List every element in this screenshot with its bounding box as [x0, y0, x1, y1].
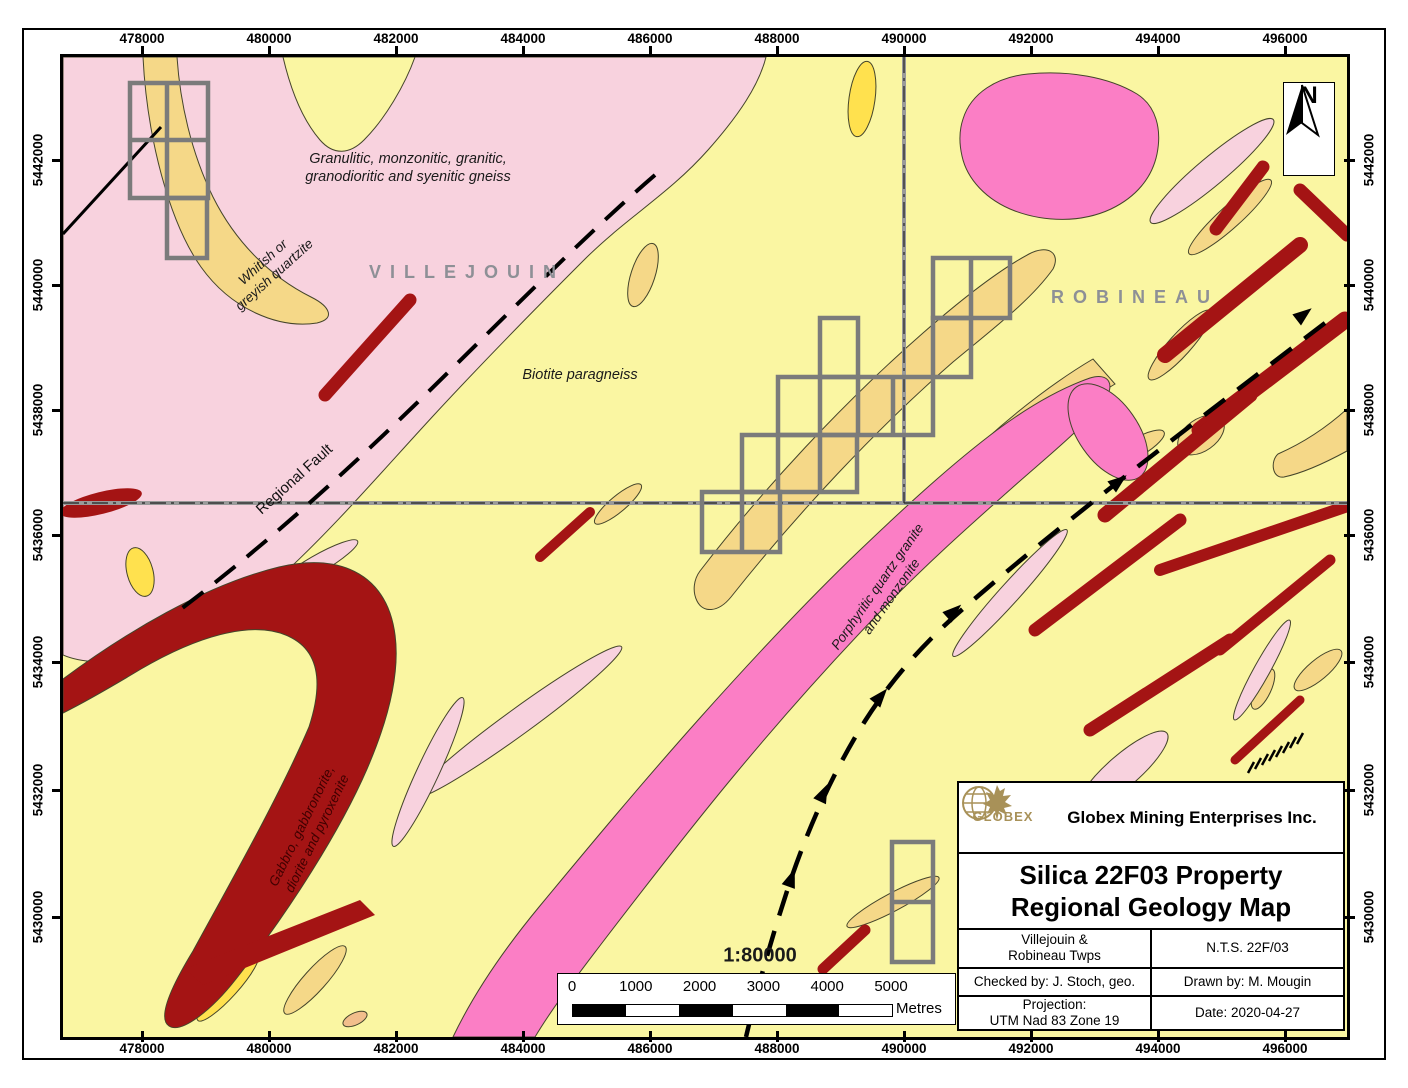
scale-ratio-label: 1:80000	[723, 944, 796, 969]
northing-label-right: 5440000	[1362, 259, 1377, 312]
tick-top	[1284, 46, 1287, 57]
tick-left	[52, 284, 63, 287]
map-title-line2: Regional Geology Map	[1011, 891, 1291, 924]
scale-bar-segment	[839, 1005, 892, 1016]
tick-bottom	[395, 1031, 398, 1042]
tick-right	[1344, 284, 1355, 287]
northing-label-left: 5436000	[31, 509, 46, 562]
map-area: Granulitic, monzonitic, granitic,granodi…	[60, 54, 1350, 1040]
tick-right	[1344, 916, 1355, 919]
tick-right	[1344, 159, 1355, 162]
date-cell: Date: 2020-04-27	[1150, 997, 1343, 1029]
easting-label-bottom: 478000	[119, 1041, 164, 1056]
scale-bar-segment	[786, 1005, 839, 1016]
label-granulitic-gneiss: Granulitic, monzonitic, granitic,granodi…	[305, 150, 511, 186]
scale-bar-number: 5000	[874, 978, 907, 995]
scale-bar-number: 0	[568, 978, 576, 995]
tick-bottom	[776, 1031, 779, 1042]
tick-bottom	[522, 1031, 525, 1042]
tick-right	[1344, 534, 1355, 537]
easting-label-bottom: 496000	[1262, 1041, 1307, 1056]
title-block-row-credits: Checked by: J. Stoch, geo. Drawn by: M. …	[959, 967, 1343, 995]
title-block: GLOBEX Globex Mining Enterprises Inc. Si…	[957, 781, 1345, 1031]
title-block-row-projection: Projection:UTM Nad 83 Zone 19 Date: 2020…	[959, 995, 1343, 1029]
map-title-line1: Silica 22F03 Property	[1019, 859, 1282, 892]
townships-cell: Villejouin &Robineau Twps	[959, 930, 1150, 968]
globex-logo: GLOBEX	[967, 812, 1039, 824]
easting-label-bottom: 490000	[881, 1041, 926, 1056]
tick-left	[52, 916, 63, 919]
tick-bottom	[141, 1031, 144, 1042]
scale-bar-segment	[679, 1005, 732, 1016]
tick-top	[903, 46, 906, 57]
scale-bar-segment	[733, 1005, 786, 1016]
magenta-blob	[960, 73, 1159, 219]
tick-top	[268, 46, 271, 57]
tick-top	[776, 46, 779, 57]
easting-label-top: 488000	[754, 31, 799, 46]
northing-label-right: 5438000	[1362, 384, 1377, 437]
northing-label-left: 5432000	[31, 764, 46, 817]
north-arrow: N	[1283, 82, 1335, 176]
company-name: Globex Mining Enterprises Inc.	[1049, 808, 1335, 828]
northing-label-left: 5430000	[31, 891, 46, 944]
north-arrow-icon	[1284, 83, 1320, 139]
tick-right	[1344, 661, 1355, 664]
easting-label-top: 480000	[246, 31, 291, 46]
tick-top	[1157, 46, 1160, 57]
scale-bar-unit: Metres	[896, 1000, 942, 1017]
easting-label-bottom: 492000	[1008, 1041, 1053, 1056]
easting-label-top: 482000	[373, 31, 418, 46]
nts-cell: N.T.S. 22F/03	[1150, 930, 1343, 968]
northing-label-right: 5436000	[1362, 509, 1377, 562]
northing-label-left: 5438000	[31, 384, 46, 437]
easting-label-top: 486000	[627, 31, 672, 46]
easting-label-bottom: 488000	[754, 1041, 799, 1056]
scale-bar-number: 4000	[811, 978, 844, 995]
tick-left	[52, 409, 63, 412]
northing-label-left: 5442000	[31, 134, 46, 187]
tick-top	[1030, 46, 1033, 57]
tick-top	[141, 46, 144, 57]
northing-label-left: 5440000	[31, 259, 46, 312]
northing-label-right: 5430000	[1362, 891, 1377, 944]
easting-label-top: 496000	[1262, 31, 1307, 46]
tick-left	[52, 789, 63, 792]
tick-left	[52, 534, 63, 537]
tick-bottom	[649, 1031, 652, 1042]
tick-bottom	[1157, 1031, 1160, 1042]
scale-bar-number: 2000	[683, 978, 716, 995]
scale-bar-segment	[626, 1005, 679, 1016]
label-robineau-township: ROBINEAU	[1051, 286, 1219, 309]
tick-right	[1344, 409, 1355, 412]
easting-label-bottom: 484000	[500, 1041, 545, 1056]
easting-label-top: 484000	[500, 31, 545, 46]
northing-label-right: 5434000	[1362, 636, 1377, 689]
northing-label-right: 5442000	[1362, 134, 1377, 187]
northing-label-right: 5432000	[1362, 764, 1377, 817]
title-block-logo-row: GLOBEX Globex Mining Enterprises Inc.	[959, 783, 1343, 852]
drawn-by-cell: Drawn by: M. Mougin	[1150, 969, 1343, 995]
easting-label-bottom: 486000	[627, 1041, 672, 1056]
tick-top	[395, 46, 398, 57]
projection-cell: Projection:UTM Nad 83 Zone 19	[959, 997, 1150, 1029]
easting-label-bottom: 482000	[373, 1041, 418, 1056]
easting-label-top: 478000	[119, 31, 164, 46]
label-villejouin-township: VILLEJOUIN	[369, 261, 565, 284]
scale-bar-number: 1000	[619, 978, 652, 995]
title-block-row-townships: Villejouin &Robineau Twps N.T.S. 22F/03	[959, 928, 1343, 968]
easting-label-bottom: 494000	[1135, 1041, 1180, 1056]
scale-bar-segment	[573, 1005, 626, 1016]
globe-maple-leaf-icon	[959, 783, 1013, 823]
checked-by-cell: Checked by: J. Stoch, geo.	[959, 969, 1150, 995]
easting-label-top: 494000	[1135, 31, 1180, 46]
tick-left	[52, 661, 63, 664]
map-title: Silica 22F03 Property Regional Geology M…	[959, 852, 1343, 927]
easting-label-top: 490000	[881, 31, 926, 46]
easting-label-top: 492000	[1008, 31, 1053, 46]
geology-map-page: Granulitic, monzonitic, granitic,granodi…	[0, 0, 1408, 1088]
tick-bottom	[268, 1031, 271, 1042]
tick-bottom	[903, 1031, 906, 1042]
label-biotite-paragneiss: Biotite paragneiss	[522, 366, 637, 384]
scale-bar: 010002000300040005000 Metres	[557, 973, 956, 1025]
tick-bottom	[1030, 1031, 1033, 1042]
scale-bar-number: 3000	[747, 978, 780, 995]
tick-right	[1344, 789, 1355, 792]
easting-label-bottom: 480000	[246, 1041, 291, 1056]
scale-bar-segments	[572, 1004, 893, 1017]
northing-label-left: 5434000	[31, 636, 46, 689]
tick-top	[649, 46, 652, 57]
tick-left	[52, 159, 63, 162]
tick-top	[522, 46, 525, 57]
tick-bottom	[1284, 1031, 1287, 1042]
